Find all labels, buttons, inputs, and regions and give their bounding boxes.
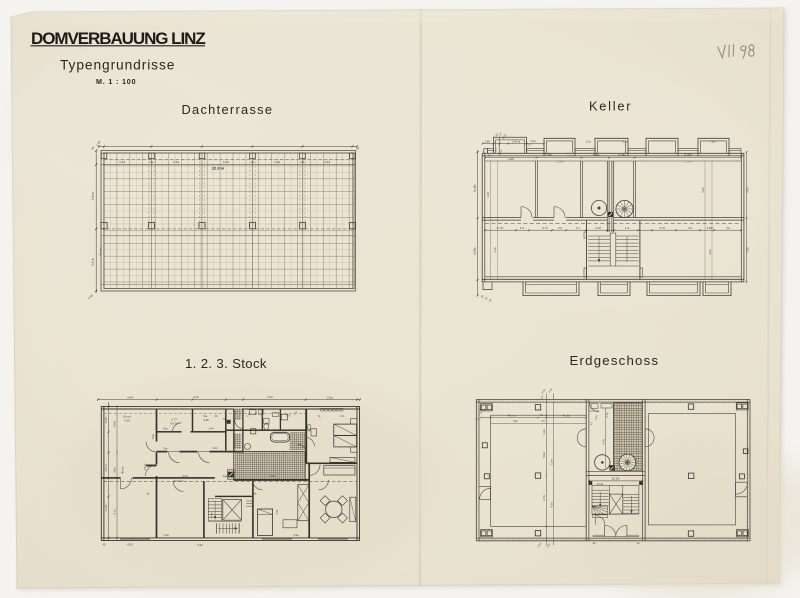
svg-text:7.8a: 7.8a [163, 448, 168, 451]
svg-text:22.8 m: 22.8 m [212, 165, 225, 170]
svg-text:4.96: 4.96 [508, 157, 514, 161]
svg-text:4.44: 4.44 [119, 160, 125, 164]
svg-text:6.0a: 6.0a [223, 160, 229, 164]
svg-text:5.4a: 5.4a [746, 187, 750, 193]
svg-text:10.56: 10.56 [612, 477, 620, 481]
svg-text:4.8 m: 4.8 m [143, 464, 147, 471]
svg-text:7.8a: 7.8a [513, 420, 518, 423]
svg-text:4.96²: 4.96² [104, 417, 108, 424]
svg-text:4.53²: 4.53² [473, 247, 477, 254]
svg-text:2.6a: 2.6a [197, 543, 203, 547]
svg-text:4.44: 4.44 [324, 160, 330, 164]
svg-text:-1.1 ta: -1.1 ta [556, 161, 564, 164]
svg-text:2.7: 2.7 [576, 226, 581, 230]
svg-text:1.2a: 1.2a [585, 139, 591, 143]
svg-text:2.8: 2.8 [527, 144, 531, 147]
svg-text:Keller: Keller [589, 99, 631, 114]
svg-text:Dachterrasse: Dachterrasse [182, 102, 273, 117]
svg-text:7a: 7a [301, 160, 305, 164]
svg-text:4.4a: 4.4a [606, 412, 609, 417]
svg-text:3.1a: 3.1a [193, 395, 199, 399]
svg-text:3.4 m: 3.4 m [91, 258, 95, 266]
svg-text:-1.1 ta: -1.1 ta [566, 154, 574, 158]
svg-text:3.98²: 3.98² [544, 153, 551, 157]
svg-text:-1.1 ta: -1.1 ta [684, 161, 692, 164]
svg-text:4.5a: 4.5a [746, 247, 750, 253]
svg-text:Typengrundrisse: Typengrundrisse [60, 58, 175, 73]
svg-text:M. 1 : 100: M. 1 : 100 [96, 77, 136, 86]
svg-text:4.5: 4.5 [539, 414, 543, 417]
svg-text:2.6: 2.6 [340, 415, 344, 418]
svg-text:3.79: 3.79 [659, 226, 665, 230]
svg-text:4.0: 4.0 [558, 226, 563, 230]
svg-text:2.64 ta: 2.64 ta [512, 139, 521, 143]
svg-text:1.0: 1.0 [520, 226, 525, 230]
svg-text:3.71: 3.71 [542, 226, 548, 230]
svg-text:DOMVERBAUUNG LINZ: DOMVERBAUUNG LINZ [31, 29, 206, 48]
svg-text:2.6a: 2.6a [327, 395, 333, 399]
svg-text:-2.8: -2.8 [286, 415, 291, 418]
svg-text:5.8a: 5.8a [542, 452, 546, 458]
svg-text:3aa: 3aa [223, 475, 228, 478]
svg-text:12 m: 12 m [549, 458, 553, 465]
svg-text:3.6 m: 3.6 m [91, 192, 95, 200]
svg-text:5.48²: 5.48² [473, 184, 477, 191]
svg-text:5.8a: 5.8a [702, 187, 705, 192]
svg-text:3.18: 3.18 [595, 226, 601, 230]
svg-text:4.7a: 4.7a [269, 474, 275, 478]
svg-text:-7 ta: -7 ta [475, 418, 480, 421]
svg-text:-7.8a: -7.8a [709, 139, 715, 143]
svg-text:4.7a: 4.7a [113, 509, 117, 515]
svg-text:2.4a: 2.4a [276, 509, 279, 514]
svg-text:4.44: 4.44 [213, 447, 218, 450]
svg-text:46 mm: 46 mm [508, 413, 517, 417]
svg-text:4.9.6: 4.9.6 [113, 421, 117, 427]
svg-text:7.6a: 7.6a [163, 428, 168, 431]
svg-text:4.9a: 4.9a [163, 533, 169, 537]
svg-text:8.3a: 8.3a [622, 139, 628, 143]
svg-text:48 mm: 48 mm [122, 466, 125, 474]
svg-text:41 aa: 41 aa [563, 413, 570, 417]
svg-text:3.72²: 3.72² [497, 226, 504, 230]
svg-text:7.6a: 7.6a [152, 434, 155, 439]
svg-text:4.7a: 4.7a [601, 439, 605, 445]
svg-text:4.2a: 4.2a [530, 139, 536, 143]
svg-text:1. 2. 3. Stock: 1. 2. 3. Stock [185, 356, 267, 371]
svg-text:4.3a: 4.3a [549, 502, 553, 508]
svg-text:4.2a: 4.2a [542, 429, 546, 435]
svg-text:4.26²: 4.26² [104, 505, 108, 512]
svg-text:4.26: 4.26 [124, 418, 130, 422]
svg-text:4.9a: 4.9a [293, 533, 299, 537]
svg-text:4.8a: 4.8a [113, 467, 117, 473]
svg-text:2.77: 2.77 [171, 418, 177, 422]
svg-text:Erdgeschoss: Erdgeschoss [570, 353, 659, 368]
svg-text:4.50: 4.50 [127, 543, 133, 547]
svg-text:4.44: 4.44 [182, 474, 188, 478]
svg-text:3.48: 3.48 [486, 192, 490, 198]
svg-text:4.7a: 4.7a [542, 495, 546, 501]
svg-text:4.0: 4.0 [688, 226, 693, 230]
svg-text:4.9.74: 4.9.74 [170, 422, 178, 426]
svg-text:2.6a: 2.6a [274, 160, 280, 164]
svg-text:4.2a: 4.2a [709, 249, 712, 254]
svg-text:4.4a: 4.4a [211, 512, 214, 517]
svg-text:-18 mm: -18 mm [99, 247, 103, 257]
svg-text:3.82²: 3.82² [707, 226, 714, 230]
svg-text:7a: 7a [726, 226, 730, 230]
svg-text:2.6a: 2.6a [173, 160, 179, 164]
svg-text:1.88: 1.88 [484, 139, 490, 143]
svg-text:7a: 7a [150, 160, 154, 164]
svg-text:4.44: 4.44 [127, 395, 133, 399]
svg-text:4.44: 4.44 [267, 395, 273, 399]
svg-text:8.34²: 8.34² [619, 153, 626, 157]
svg-text:8.48²: 8.48² [684, 153, 691, 157]
svg-text:4.1a: 4.1a [494, 247, 497, 252]
svg-text:1.8 m: 1.8 m [104, 464, 108, 472]
svg-text:7a: 7a [251, 160, 255, 164]
svg-text:2.34²: 2.34² [593, 153, 600, 157]
svg-text:1.0: 1.0 [625, 226, 630, 230]
svg-text:4.98: 4.98 [203, 418, 209, 422]
svg-text:2.44: 2.44 [209, 427, 214, 430]
